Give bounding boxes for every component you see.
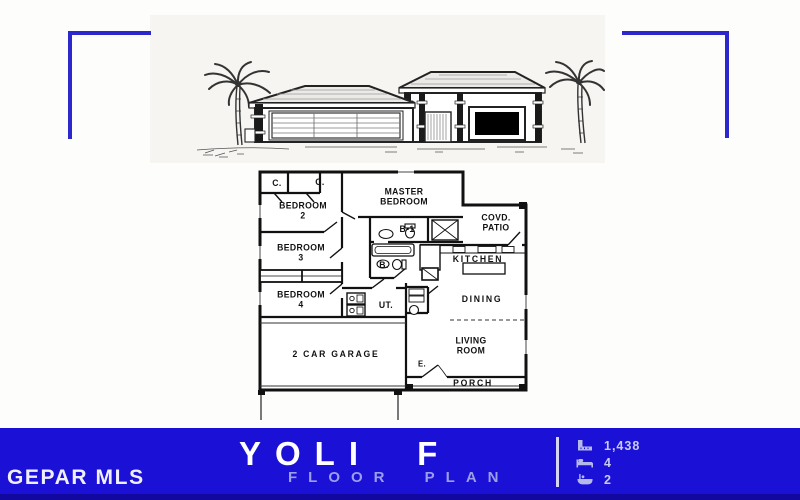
room-label-bath: B. — [374, 260, 393, 270]
stat-bedrooms: 4 — [576, 455, 640, 470]
stat-square-feet: 1,438 — [576, 438, 640, 453]
bed-icon — [576, 456, 594, 469]
room-label-dining: DINING — [462, 294, 503, 304]
sqft-value: 1,438 — [604, 439, 640, 453]
room-label-bedroom-3: BEDROOM 3 — [273, 243, 329, 264]
room-label-bedroom-2: BEDROOM 2 — [275, 201, 331, 222]
mls-watermark: GEPAR MLS — [7, 466, 145, 490]
garage-door — [269, 111, 403, 140]
garage-elevation — [245, 86, 415, 142]
room-label-master-bedroom: MASTER BEDROOM — [369, 187, 438, 208]
banner-bottom-edge — [0, 494, 800, 500]
house-elevation-drawing — [185, 55, 605, 160]
listing-floor-plan-image: C. C. BEDROOM 2 MASTER BEDROOM COVD. PAT… — [0, 0, 800, 500]
room-label-entry: E. — [412, 359, 431, 368]
room-label-closet-2: C. — [310, 177, 329, 187]
bathrooms-value: 2 — [604, 473, 612, 487]
room-label-closet-1: C. — [267, 178, 286, 188]
listing-stats: 1,438 4 — [576, 438, 640, 487]
bath-icon — [576, 473, 594, 486]
ground-hatching — [197, 147, 583, 157]
right-palm-tree — [546, 61, 604, 143]
front-window — [469, 107, 525, 140]
entry-door — [425, 112, 451, 142]
room-label-utility: UT. — [372, 300, 401, 310]
room-label-bath-1: B-1 — [393, 224, 422, 234]
room-label-bedroom-4: BEDROOM 4 — [273, 290, 329, 311]
bottom-banner: GEPAR MLS YOLI F FLOOR PLAN 1,438 — [0, 428, 800, 500]
plan-name-title: YOLI F — [239, 435, 451, 473]
sqft-ruler-icon — [576, 439, 594, 452]
room-label-kitchen: KITCHEN — [453, 254, 504, 264]
frame-bracket-top-left — [68, 31, 151, 35]
frame-bracket-top-right-vertical — [725, 31, 729, 138]
bedrooms-value: 4 — [604, 456, 612, 470]
frame-bracket-top-right — [622, 31, 729, 35]
room-label-porch: PORCH — [453, 378, 493, 388]
stat-bathrooms: 2 — [576, 472, 640, 487]
plan-subtitle: FLOOR PLAN — [288, 469, 510, 486]
frame-bracket-top-left-vertical — [68, 31, 72, 139]
entry-wing-elevation — [399, 72, 545, 142]
stats-divider — [556, 437, 559, 487]
room-label-living-room: LIVING ROOM — [446, 336, 496, 357]
room-label-garage: 2 CAR GARAGE — [293, 349, 380, 359]
room-label-covered-patio: COVD. PATIO — [474, 213, 518, 234]
